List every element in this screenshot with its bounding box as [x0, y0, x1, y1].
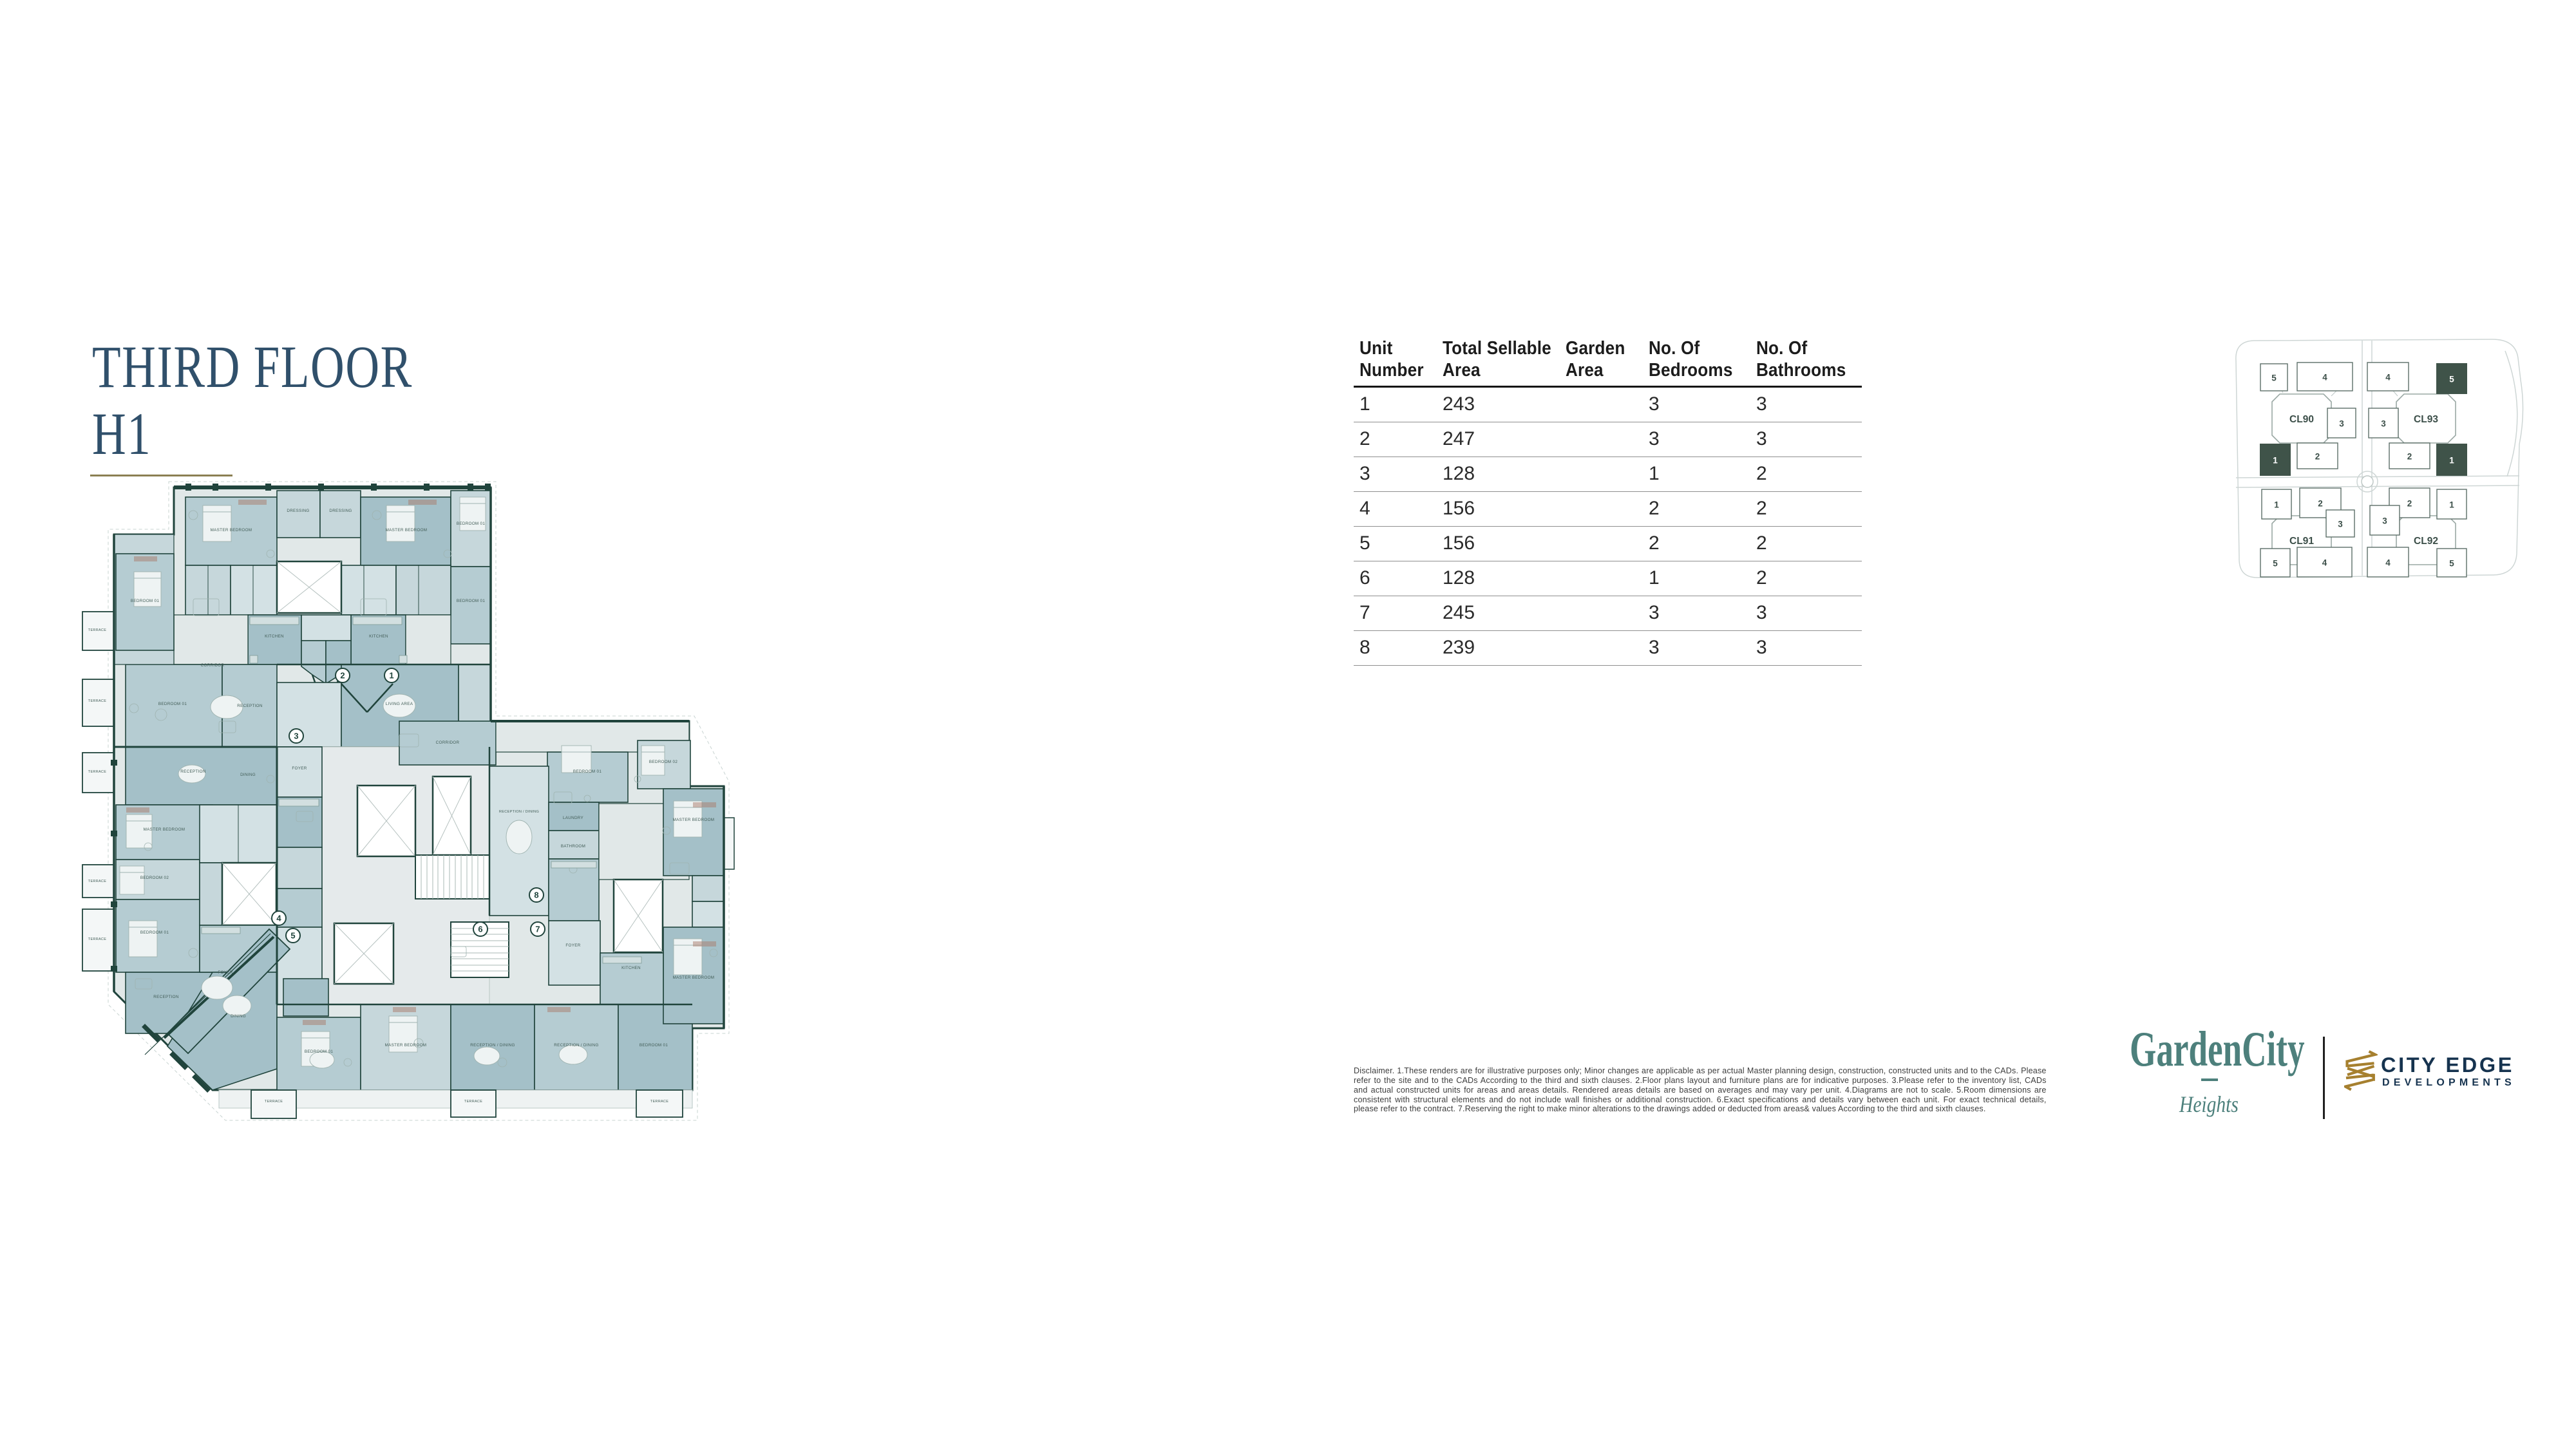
svg-text:8: 8 — [534, 890, 538, 900]
svg-text:BEDROOM 01: BEDROOM 01 — [639, 1043, 668, 1048]
svg-text:MASTER BEDROOM: MASTER BEDROOM — [144, 827, 185, 832]
svg-text:2: 2 — [2315, 452, 2320, 462]
svg-text:MASTER BEDROOM: MASTER BEDROOM — [673, 818, 715, 822]
svg-text:LIVING AREA: LIVING AREA — [386, 702, 413, 706]
svg-text:3: 3 — [2382, 516, 2387, 526]
svg-text:4: 4 — [2385, 373, 2391, 382]
svg-text:4: 4 — [2322, 558, 2327, 568]
svg-text:5: 5 — [2273, 559, 2278, 569]
svg-text:MASTER BEDROOM: MASTER BEDROOM — [673, 975, 715, 980]
svg-text:2: 2 — [2318, 499, 2323, 509]
svg-text:3: 3 — [294, 731, 298, 741]
svg-text:RECEPTION / DINING: RECEPTION / DINING — [499, 810, 539, 814]
svg-text:TERRACE: TERRACE — [88, 770, 106, 774]
svg-text:KITCHEN: KITCHEN — [369, 634, 388, 639]
svg-text:4: 4 — [2385, 558, 2391, 568]
svg-text:1: 1 — [2449, 500, 2454, 510]
svg-text:1: 1 — [389, 671, 393, 681]
svg-text:7: 7 — [535, 925, 540, 934]
svg-text:FOYER: FOYER — [292, 766, 307, 771]
svg-text:BEDROOM 02: BEDROOM 02 — [140, 876, 169, 880]
svg-text:TERRACE: TERRACE — [88, 937, 106, 941]
svg-text:CL91: CL91 — [2289, 536, 2314, 547]
svg-text:CORRIDOR: CORRIDOR — [201, 663, 225, 668]
svg-text:CL90: CL90 — [2289, 414, 2314, 425]
svg-text:FOYER: FOYER — [218, 970, 232, 975]
svg-text:5: 5 — [290, 931, 295, 941]
svg-text:TERRACE: TERRACE — [88, 699, 106, 703]
svg-text:5: 5 — [2271, 373, 2277, 383]
svg-text:MASTER BEDROOM: MASTER BEDROOM — [211, 528, 252, 532]
svg-text:BEDROOM 01: BEDROOM 01 — [140, 930, 169, 935]
svg-text:3: 3 — [2381, 419, 2386, 429]
svg-text:4: 4 — [2322, 373, 2327, 382]
svg-text:CL92: CL92 — [2414, 536, 2438, 547]
svg-text:2: 2 — [340, 671, 345, 681]
svg-text:DRESSING: DRESSING — [329, 509, 352, 513]
svg-text:1: 1 — [2274, 500, 2279, 510]
svg-text:KITCHEN: KITCHEN — [265, 634, 284, 639]
svg-text:MASTER BEDROOM: MASTER BEDROOM — [386, 528, 428, 532]
svg-text:BEDROOM 02: BEDROOM 02 — [649, 760, 677, 764]
svg-text:6: 6 — [478, 925, 482, 934]
svg-text:CORRIDOR: CORRIDOR — [436, 740, 460, 745]
svg-text:BEDROOM 01: BEDROOM 01 — [131, 599, 159, 603]
svg-text:3: 3 — [2339, 419, 2344, 429]
svg-text:TERRACE: TERRACE — [88, 880, 106, 883]
svg-text:TERRACE: TERRACE — [88, 628, 106, 632]
svg-text:RECEPTION / DINING: RECEPTION / DINING — [554, 1043, 598, 1048]
svg-text:RECEPTION: RECEPTION — [180, 769, 206, 774]
svg-text:KITCHEN: KITCHEN — [621, 966, 641, 970]
svg-text:5: 5 — [2449, 375, 2454, 384]
svg-text:2: 2 — [2407, 499, 2412, 509]
svg-text:RECEPTION: RECEPTION — [153, 995, 179, 999]
svg-text:DINING: DINING — [231, 1014, 246, 1019]
svg-text:TERRACE: TERRACE — [464, 1100, 482, 1104]
svg-text:LAUNDRY: LAUNDRY — [563, 816, 584, 820]
svg-text:DRESSING: DRESSING — [287, 509, 309, 513]
svg-text:BEDROOM 01: BEDROOM 01 — [158, 702, 187, 706]
svg-text:BATHROOM: BATHROOM — [561, 844, 585, 849]
svg-text:BEDROOM 01: BEDROOM 01 — [573, 769, 601, 774]
svg-text:BEDROOM 01: BEDROOM 01 — [457, 522, 485, 526]
svg-text:TERRACE: TERRACE — [265, 1100, 283, 1104]
svg-text:5: 5 — [2449, 559, 2454, 569]
svg-text:2: 2 — [2407, 452, 2412, 462]
svg-text:FOYER: FOYER — [565, 943, 580, 948]
svg-text:RECEPTION / DINING: RECEPTION / DINING — [470, 1043, 515, 1048]
svg-text:MASTER BEDROOM: MASTER BEDROOM — [385, 1043, 427, 1048]
svg-text:1: 1 — [2449, 456, 2454, 466]
svg-text:CL93: CL93 — [2414, 414, 2438, 425]
svg-text:3: 3 — [2338, 520, 2343, 529]
svg-text:DINING: DINING — [240, 773, 256, 777]
svg-text:BEDROOM 01: BEDROOM 01 — [305, 1050, 333, 1054]
svg-text:TERRACE: TERRACE — [650, 1100, 668, 1104]
svg-text:1: 1 — [2273, 456, 2278, 466]
svg-text:BEDROOM 01: BEDROOM 01 — [457, 599, 485, 603]
svg-text:4: 4 — [276, 914, 281, 923]
svg-text:RECEPTION: RECEPTION — [237, 704, 263, 708]
